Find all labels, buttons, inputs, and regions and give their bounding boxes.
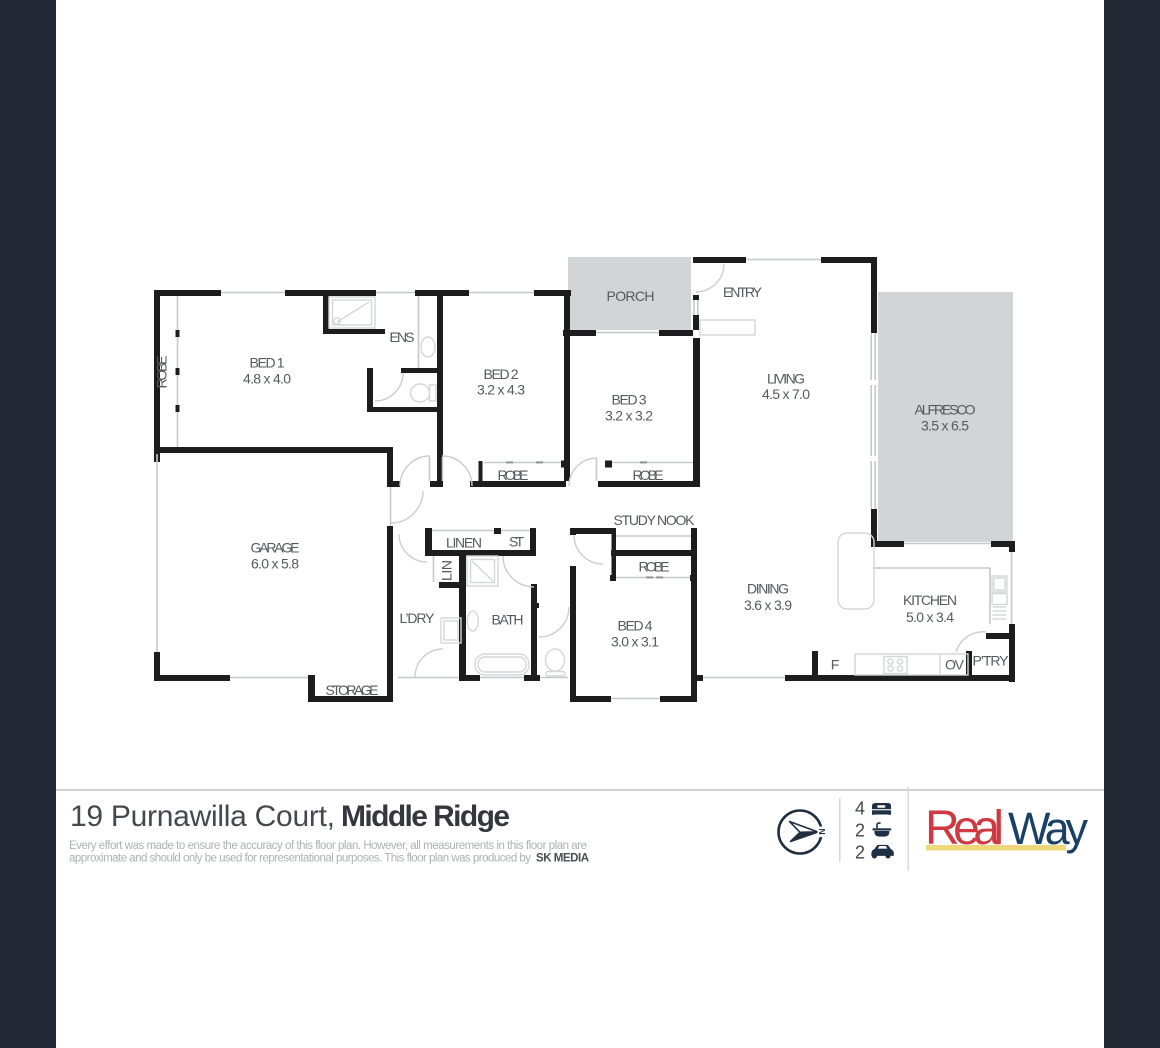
svg-text:GARAGE: GARAGE <box>251 540 300 556</box>
svg-text:L’DRY: L’DRY <box>400 610 436 626</box>
svg-text:BED 4: BED 4 <box>618 618 653 634</box>
svg-text:Middle Ridge: Middle Ridge <box>341 800 510 833</box>
svg-text:KITCHEN: KITCHEN <box>903 592 957 608</box>
svg-text:approximate and should only be: approximate and should only be used for … <box>69 853 531 865</box>
svg-text:LIVING: LIVING <box>767 371 805 387</box>
svg-text:OV: OV <box>945 657 965 673</box>
svg-text:STUDY NOOK: STUDY NOOK <box>614 512 696 528</box>
svg-text:3.6 x 3.9: 3.6 x 3.9 <box>744 597 792 613</box>
svg-text:BED 3: BED 3 <box>612 392 647 408</box>
svg-text:3.2 x 3.2: 3.2 x 3.2 <box>605 408 653 424</box>
svg-text:19 Purnawilla Court,: 19 Purnawilla Court, <box>70 800 335 833</box>
svg-text:Real: Real <box>925 802 1004 855</box>
svg-text:3.2 x 4.3: 3.2 x 4.3 <box>477 382 525 398</box>
svg-text:4.8 x 4.0: 4.8 x 4.0 <box>243 371 291 387</box>
svg-text:ROBE: ROBE <box>154 356 170 389</box>
svg-text:2: 2 <box>855 821 865 841</box>
svg-text:4.5 x 7.0: 4.5 x 7.0 <box>762 386 810 402</box>
svg-text:LIN: LIN <box>438 560 454 581</box>
svg-text:4: 4 <box>855 799 865 819</box>
svg-text:BED 2: BED 2 <box>484 366 519 382</box>
svg-text:N: N <box>817 828 827 834</box>
svg-text:6.0 x 5.8: 6.0 x 5.8 <box>251 556 299 572</box>
svg-text:ROBE: ROBE <box>639 559 670 575</box>
svg-text:Every effort was made to ensur: Every effort was made to ensure the accu… <box>69 840 587 852</box>
svg-text:SK MEDIA: SK MEDIA <box>536 853 589 865</box>
svg-text:ST: ST <box>509 534 524 550</box>
svg-text:3.0 x 3.1: 3.0 x 3.1 <box>611 634 659 650</box>
svg-text:Way: Way <box>1008 803 1089 854</box>
svg-text:DINING: DINING <box>747 581 789 597</box>
svg-text:F: F <box>831 657 840 673</box>
svg-text:ROBE: ROBE <box>498 467 529 483</box>
svg-text:3.5 x 6.5: 3.5 x 6.5 <box>921 418 969 434</box>
svg-text:PORCH: PORCH <box>607 288 655 304</box>
svg-text:ENTRY: ENTRY <box>723 284 763 300</box>
svg-text:P’TRY: P’TRY <box>973 653 1010 669</box>
svg-text:2: 2 <box>855 843 865 863</box>
svg-text:ALFRESCO: ALFRESCO <box>915 402 976 418</box>
svg-text:BED 1: BED 1 <box>250 355 285 371</box>
svg-text:LINEN: LINEN <box>446 535 482 551</box>
svg-text:BATH: BATH <box>492 612 524 628</box>
svg-text:ENS: ENS <box>390 329 415 345</box>
svg-text:STORAGE: STORAGE <box>326 682 379 698</box>
svg-text:5.0 x 3.4: 5.0 x 3.4 <box>906 609 954 625</box>
svg-text:ROBE: ROBE <box>633 467 664 483</box>
